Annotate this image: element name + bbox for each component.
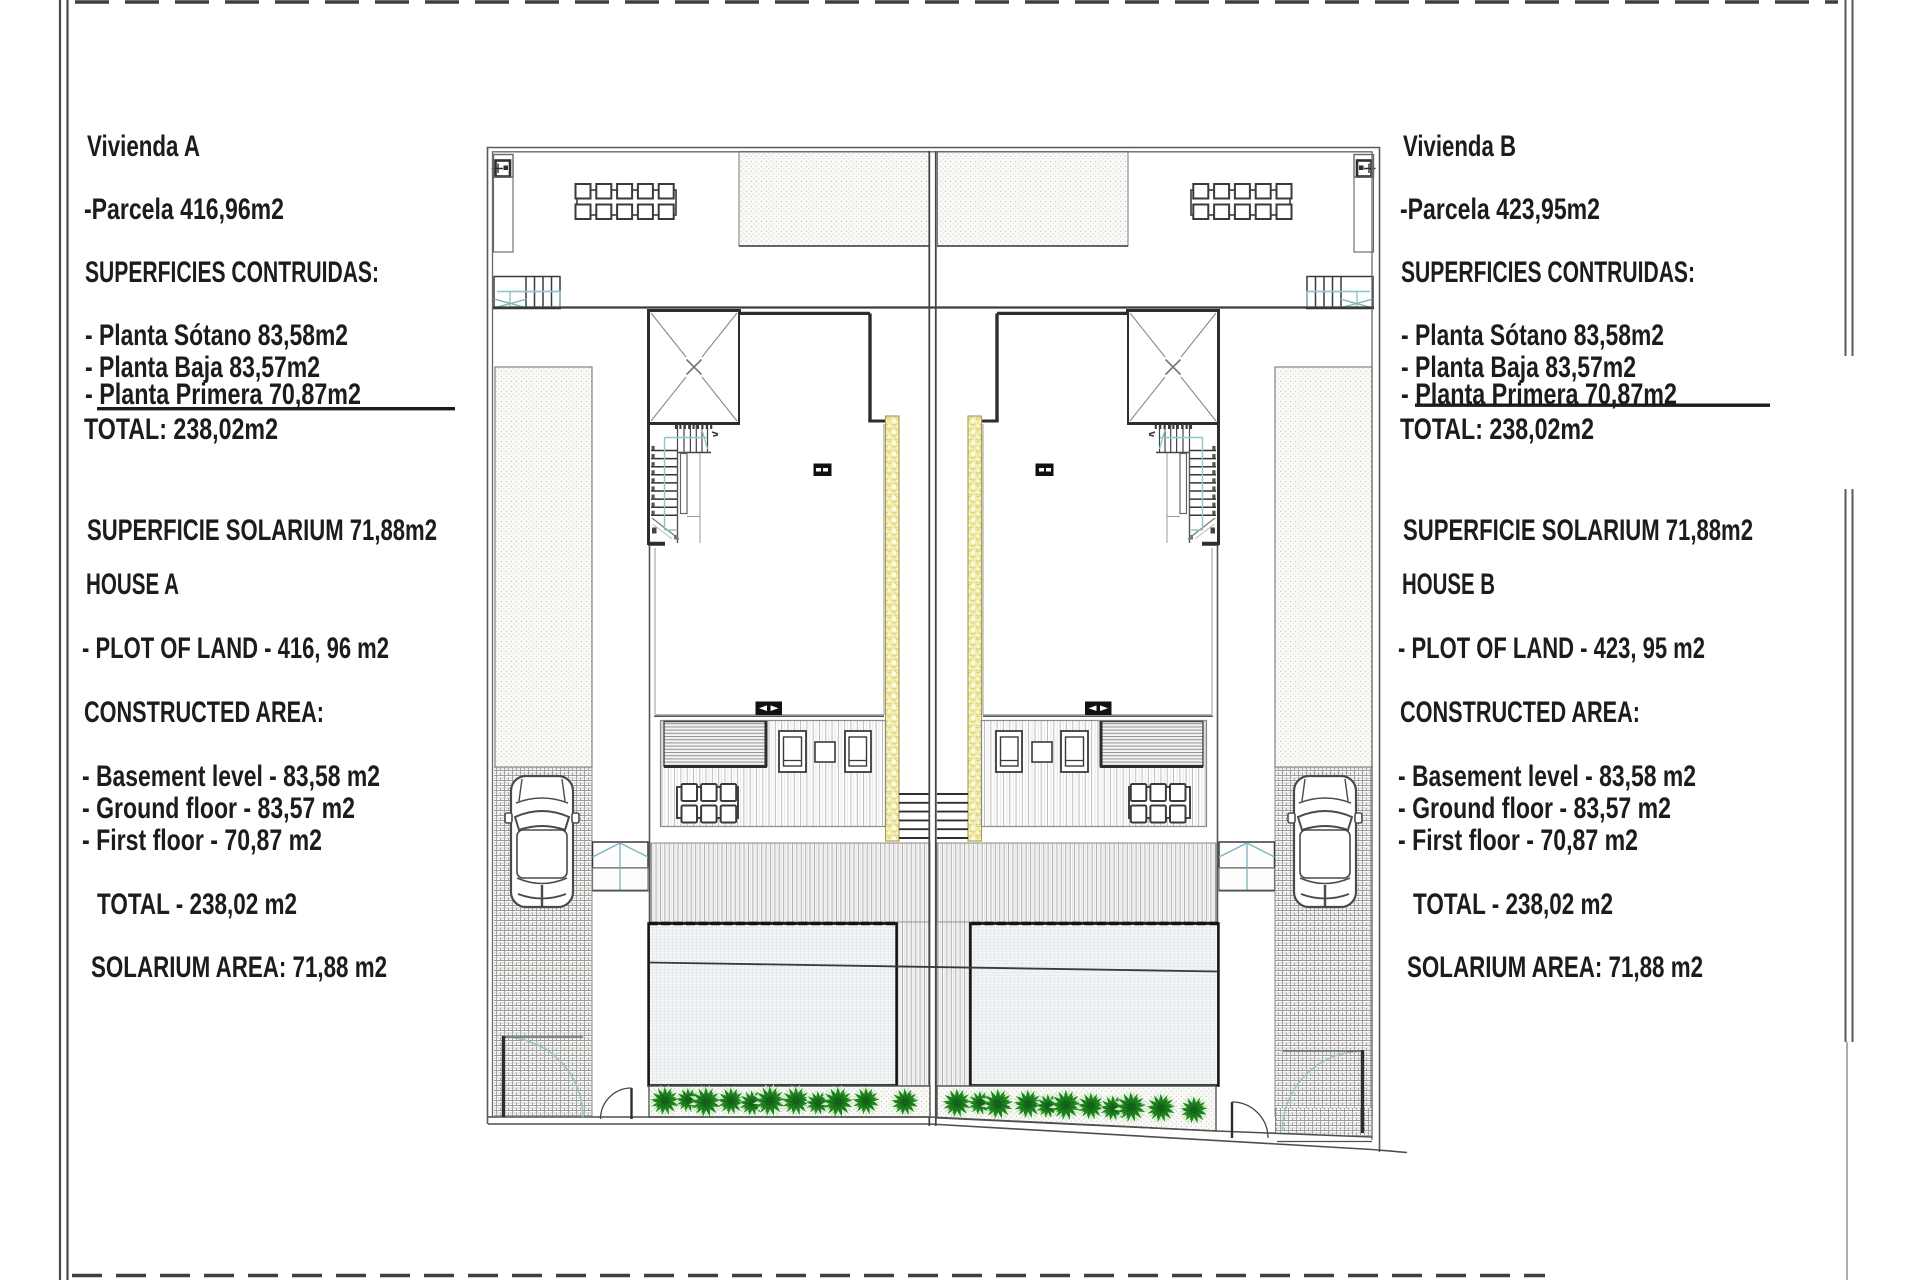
svg-text:- PLOT OF LAND - 423, 95 m2: - PLOT OF LAND - 423, 95 m2 <box>1398 632 1705 665</box>
svg-text:- Basement level - 83,58 m2: - Basement level - 83,58 m2 <box>1398 760 1696 793</box>
svg-text:- First floor - 70,87 m2: - First floor - 70,87 m2 <box>1398 824 1638 857</box>
svg-text:-Parcela 416,96m2: -Parcela 416,96m2 <box>84 193 284 226</box>
svg-text:- Planta Sótano 83,58m2: - Planta Sótano 83,58m2 <box>1401 319 1664 352</box>
svg-text:SOLARIUM AREA: 71,88 m2: SOLARIUM AREA: 71,88 m2 <box>91 951 387 984</box>
svg-text:TOTAL - 238,02 m2: TOTAL - 238,02 m2 <box>97 888 297 921</box>
svg-text:SUPERFICIE SOLARIUM 71,88m2: SUPERFICIE SOLARIUM 71,88m2 <box>87 514 437 547</box>
svg-text:SUPERFICIE SOLARIUM 71,88m2: SUPERFICIE SOLARIUM 71,88m2 <box>1403 514 1753 547</box>
svg-text:- Basement level - 83,58 m2: - Basement level - 83,58 m2 <box>82 760 380 793</box>
svg-text:-Parcela 423,95m2: -Parcela 423,95m2 <box>1400 193 1600 226</box>
svg-text:- PLOT OF LAND - 416, 96 m2: - PLOT OF LAND - 416, 96 m2 <box>82 632 389 665</box>
svg-text:- First floor - 70,87 m2: - First floor - 70,87 m2 <box>82 824 322 857</box>
svg-text:- Ground floor - 83,57 m2: - Ground floor - 83,57 m2 <box>82 792 355 825</box>
svg-text:CONSTRUCTED AREA:: CONSTRUCTED AREA: <box>84 696 324 729</box>
svg-text:HOUSE A: HOUSE A <box>86 568 179 601</box>
svg-text:- Planta Primera 70,87m2: - Planta Primera 70,87m2 <box>85 378 361 411</box>
svg-text:SOLARIUM AREA: 71,88 m2: SOLARIUM AREA: 71,88 m2 <box>1407 951 1703 984</box>
svg-text:TOTAL: 238,02m2: TOTAL: 238,02m2 <box>1400 413 1594 446</box>
svg-text:SUPERFICIES CONTRUIDAS:: SUPERFICIES CONTRUIDAS: <box>85 256 379 289</box>
svg-text:CONSTRUCTED AREA:: CONSTRUCTED AREA: <box>1400 696 1640 729</box>
svg-text:- Planta Sótano 83,58m2: - Planta Sótano 83,58m2 <box>85 319 348 352</box>
svg-text:Vivienda B: Vivienda B <box>1403 130 1516 163</box>
svg-text:Vivienda A: Vivienda A <box>87 130 200 163</box>
svg-text:- Ground floor - 83,57 m2: - Ground floor - 83,57 m2 <box>1398 792 1671 825</box>
svg-text:TOTAL: 238,02m2: TOTAL: 238,02m2 <box>84 413 278 446</box>
svg-text:HOUSE B: HOUSE B <box>1402 568 1495 601</box>
svg-text:TOTAL - 238,02 m2: TOTAL - 238,02 m2 <box>1413 888 1613 921</box>
svg-text:SUPERFICIES CONTRUIDAS:: SUPERFICIES CONTRUIDAS: <box>1401 256 1695 289</box>
